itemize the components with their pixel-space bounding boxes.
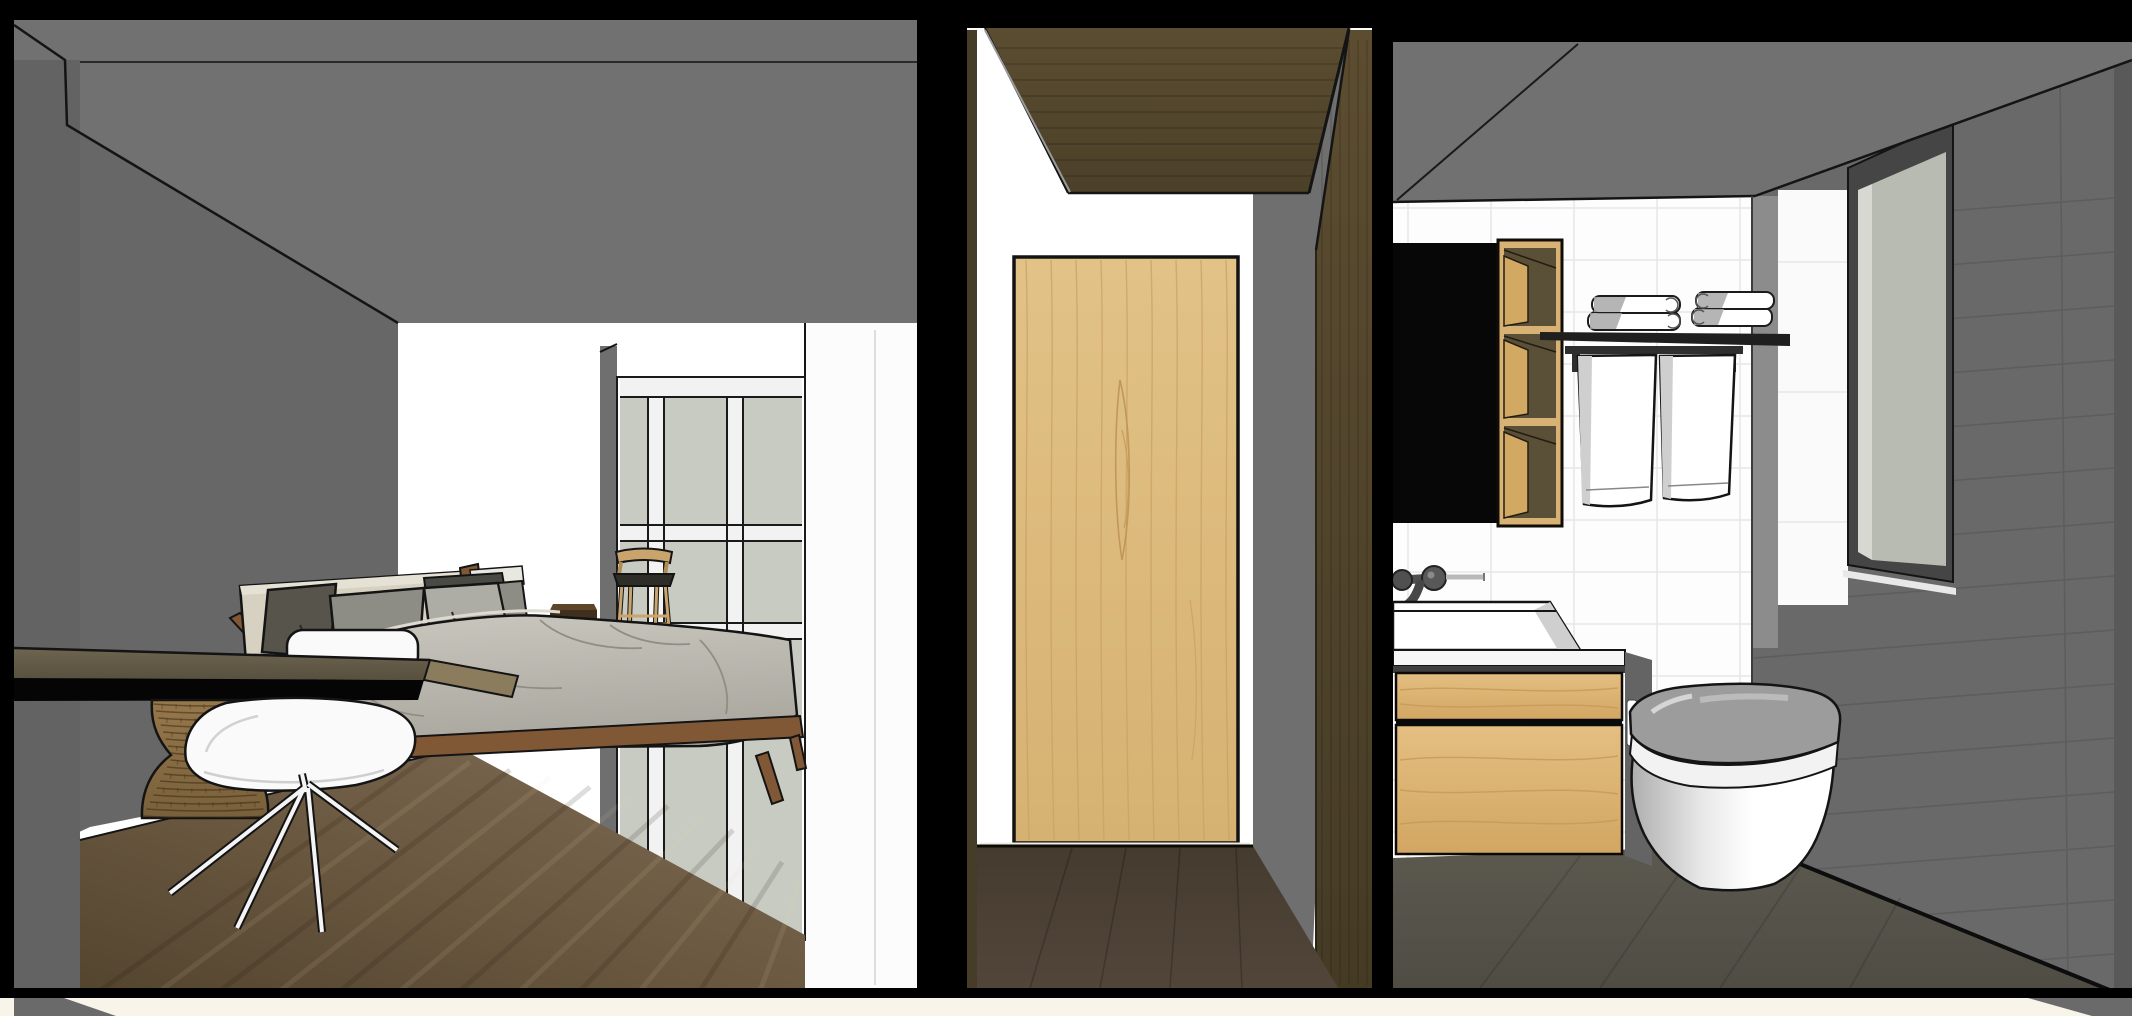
bottom-cut-line — [0, 988, 2132, 998]
section-render — [0, 0, 2132, 1016]
window-sash-edge — [1858, 184, 1872, 560]
bedroom-left-wall-cut-face — [14, 60, 80, 991]
right-wall-cut-edge — [2114, 52, 2132, 991]
black-cabinet — [1393, 243, 1498, 523]
vessel-sink — [1393, 602, 1580, 650]
render-viewport — [0, 0, 2132, 1016]
window-glass — [1872, 152, 1946, 566]
towel-rail — [1565, 346, 1743, 354]
bathroom-window — [1843, 120, 1956, 595]
bathroom — [1392, 40, 2132, 991]
desk-shadow-band — [14, 678, 424, 701]
stool-seat — [614, 574, 674, 586]
cubby-side-panels — [1504, 256, 1528, 518]
vanity-drawer-bottom — [1396, 725, 1622, 854]
window-reveal — [1778, 190, 1848, 605]
vanity — [1393, 650, 1652, 866]
hall-left-wood-sliver — [967, 30, 977, 991]
vanity-counter — [1393, 650, 1625, 666]
drawer-gap — [1396, 719, 1622, 726]
partition-hall-bath — [1372, 28, 1393, 991]
stool-backrest — [616, 549, 672, 564]
bottom-strip — [0, 998, 2132, 1016]
lid-highlight — [1700, 696, 1788, 700]
window-corner-pillar — [1752, 196, 1778, 648]
bedroom-right-white-wall — [805, 323, 917, 991]
window-top-rail — [620, 378, 802, 397]
partition-bedroom-hall — [917, 20, 967, 991]
vanity-drawer-top — [1396, 673, 1622, 720]
bedroom — [14, 20, 917, 991]
oak-shelf-unit — [1498, 240, 1562, 526]
left-cut-band — [0, 0, 14, 1016]
hallway — [957, 28, 1372, 991]
